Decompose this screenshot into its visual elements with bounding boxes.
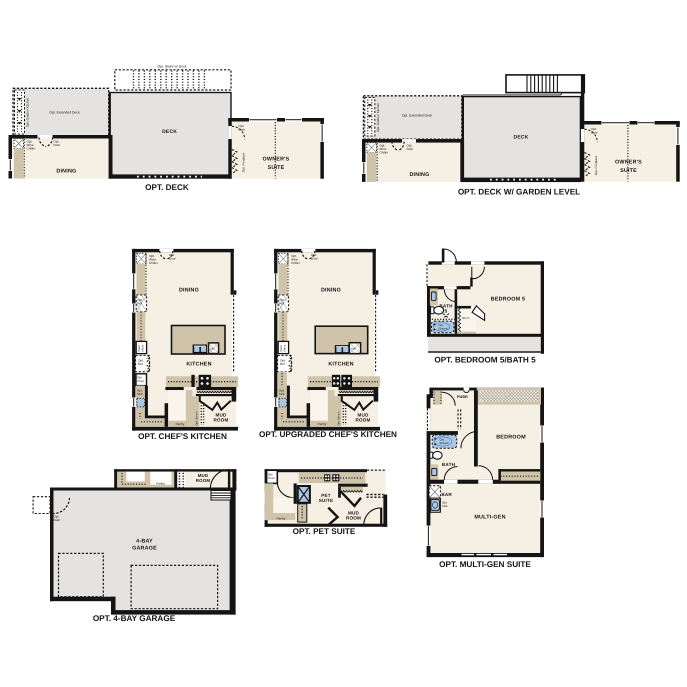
svg-text:Opt. Fireplace: Opt. Fireplace: [242, 153, 246, 173]
svg-text:Pantry: Pantry: [156, 481, 165, 485]
svg-text:OPT. DECK W/ GARDEN LEVEL: OPT. DECK W/ GARDEN LEVEL: [458, 188, 580, 197]
svg-text:Ref: Ref: [280, 362, 285, 366]
svg-text:Ref: Ref: [137, 302, 142, 306]
svg-text:Shower: Shower: [439, 327, 448, 330]
svg-text:BAR: BAR: [441, 492, 452, 497]
svg-text:Opt. Extended Deck: Opt. Extended Deck: [402, 114, 433, 118]
svg-text:Chiller: Chiller: [291, 261, 300, 265]
svg-text:Chiller: Chiller: [27, 147, 36, 151]
svg-text:MULTI-GEN: MULTI-GEN: [474, 515, 505, 521]
svg-text:BEDROOM 5: BEDROOM 5: [491, 297, 525, 303]
svg-text:DECK: DECK: [162, 129, 177, 135]
svg-text:Chiller: Chiller: [149, 261, 158, 265]
svg-text:DINING: DINING: [409, 172, 429, 178]
svg-text:Opt. Fireplace: Opt. Fireplace: [594, 156, 598, 176]
svg-text:OPT. BEDROOM 5/BATH 5: OPT. BEDROOM 5/BATH 5: [434, 356, 536, 365]
svg-text:PWDR: PWDR: [457, 395, 468, 399]
svg-text:DECK: DECK: [514, 135, 529, 141]
svg-text:Door: Door: [591, 130, 598, 134]
svg-text:W.I.C.: W.I.C.: [462, 316, 470, 320]
svg-text:DINING: DINING: [321, 288, 341, 294]
svg-text:Micro: Micro: [141, 344, 145, 351]
svg-text:BEDROOM: BEDROOM: [496, 435, 526, 441]
svg-text:Sink: Sink: [279, 392, 285, 396]
svg-text:Door: Door: [239, 127, 246, 131]
svg-text:Shower: Shower: [440, 442, 449, 445]
svg-text:DW: DW: [210, 348, 215, 351]
svg-text:OPT. DECK: OPT. DECK: [145, 183, 189, 192]
svg-text:SUITE: SUITE: [319, 498, 334, 503]
svg-text:Ref: Ref: [279, 302, 284, 306]
svg-text:KITCHEN: KITCHEN: [328, 362, 353, 368]
svg-text:Opt. Outdoor Kitchen: Opt. Outdoor Kitchen: [376, 103, 380, 132]
svg-text:4-BAY: 4-BAY: [136, 539, 153, 545]
svg-text:Pantry: Pantry: [176, 422, 185, 426]
svg-text:Pantry: Pantry: [318, 422, 327, 426]
svg-text:OPT. 4-BAY GARAGE: OPT. 4-BAY GARAGE: [93, 614, 176, 623]
svg-text:DW: DW: [351, 348, 356, 351]
svg-text:GARAGE: GARAGE: [132, 546, 157, 552]
svg-text:Door: Door: [311, 256, 318, 260]
svg-text:Pantry: Pantry: [277, 517, 286, 521]
svg-text:Door: Door: [54, 518, 61, 522]
svg-text:Opt. Outdoor Kitchen: Opt. Outdoor Kitchen: [26, 98, 30, 127]
svg-text:Opt. Stairs w/ Deck: Opt. Stairs w/ Deck: [157, 65, 186, 69]
svg-text:ROOM: ROOM: [355, 418, 370, 423]
svg-text:DINING: DINING: [56, 169, 76, 175]
svg-text:Oven: Oven: [268, 476, 275, 480]
svg-text:Micro: Micro: [283, 344, 287, 351]
svg-text:SUITE: SUITE: [268, 165, 285, 171]
svg-text:5: 5: [445, 309, 448, 314]
svg-text:BATH: BATH: [442, 462, 456, 467]
svg-text:ROOM: ROOM: [346, 516, 361, 521]
svg-text:Door: Door: [169, 256, 176, 260]
svg-text:OPT. CHEF'S KITCHEN: OPT. CHEF'S KITCHEN: [138, 432, 227, 441]
svg-text:Sink: Sink: [442, 504, 448, 508]
svg-text:DINING: DINING: [179, 288, 199, 294]
svg-text:Oven: Oven: [137, 379, 144, 383]
svg-text:Ref: Ref: [138, 362, 143, 366]
svg-text:OWNER'S: OWNER'S: [263, 157, 290, 163]
svg-text:OPT. PET SUITE: OPT. PET SUITE: [293, 527, 356, 536]
svg-text:Opt. Bench: Opt. Bench: [336, 411, 340, 425]
svg-text:Opt. Bench: Opt. Bench: [194, 411, 198, 425]
svg-text:Chiller: Chiller: [379, 151, 388, 155]
svg-text:Door: Door: [54, 143, 61, 147]
svg-text:Opt. Extended Deck: Opt. Extended Deck: [49, 111, 80, 115]
svg-text:SUITE: SUITE: [620, 168, 637, 174]
svg-text:OPT. UPGRADED CHEF'S KITCHEN: OPT. UPGRADED CHEF'S KITCHEN: [259, 430, 397, 439]
svg-text:OPT. MULTI-GEN SUITE: OPT. MULTI-GEN SUITE: [439, 560, 531, 569]
svg-text:ROOM: ROOM: [196, 478, 211, 483]
svg-text:Sink: Sink: [137, 392, 143, 396]
svg-text:OWNER'S: OWNER'S: [615, 160, 642, 166]
svg-text:ROOM: ROOM: [213, 418, 228, 423]
svg-text:Door: Door: [407, 147, 414, 151]
svg-text:KITCHEN: KITCHEN: [186, 362, 211, 368]
